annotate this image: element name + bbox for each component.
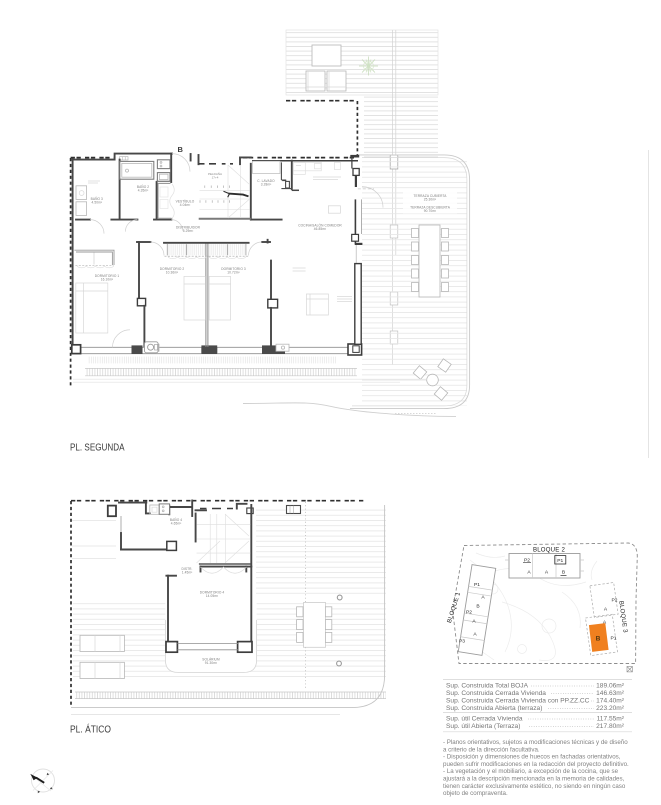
svg-text:- La vegetación y el mobiliari: - La vegetación y el mobiliario, a excep…	[443, 768, 619, 775]
svg-text:90.70m²: 90.70m²	[424, 209, 436, 213]
svg-text:A: A	[604, 607, 608, 613]
svg-text:17+4: 17+4	[212, 175, 219, 179]
svg-text:BLOQUE 1: BLOQUE 1	[446, 591, 462, 624]
svg-text:Sup. Construida Cerrada Vivien: Sup. Construida Cerrada Vivienda	[446, 690, 546, 697]
svg-text:146.63m²: 146.63m²	[596, 690, 625, 697]
svg-text:P1: P1	[474, 582, 480, 588]
svg-text:Sup. Construida Total BOJA: Sup. Construida Total BOJA	[446, 682, 529, 689]
svg-text:Sup. Construida Cerrada Vivien: Sup. Construida Cerrada Vivienda con PP.…	[446, 697, 590, 704]
svg-text:Sup. útil Cerrada Vivienda: Sup. útil Cerrada Vivienda	[446, 715, 523, 722]
svg-text:16.10m²: 16.10m²	[101, 278, 113, 282]
svg-text:4.35m²: 4.35m²	[138, 189, 149, 193]
svg-text:B: B	[476, 604, 479, 610]
svg-text:BLOQUE 3: BLOQUE 3	[617, 600, 628, 633]
svg-text:4.50m²: 4.50m²	[92, 201, 103, 205]
svg-text:ajustará a la descripción menc: ajustará a la descripción mencionada en …	[443, 776, 625, 783]
svg-text:P1: P1	[611, 636, 617, 642]
svg-text:Sup. útil Abierta (Terraza): Sup. útil Abierta (Terraza)	[446, 723, 520, 730]
svg-text:189.06m²: 189.06m²	[596, 682, 625, 689]
svg-text:pueden sufrir modificaciones e: pueden sufrir modificaciones en la redac…	[443, 761, 629, 768]
svg-text:14.05m²: 14.05m²	[206, 594, 218, 598]
svg-text:25.30m²: 25.30m²	[424, 198, 436, 202]
svg-text:10.72m²: 10.72m²	[227, 271, 239, 275]
svg-text:1.45m²: 1.45m²	[182, 570, 193, 574]
svg-text:4.65m²: 4.65m²	[171, 522, 182, 526]
svg-text:B: B	[562, 570, 565, 576]
svg-text:BLOQUE 2: BLOQUE 2	[533, 547, 565, 554]
svg-text:a criterio de la dirección fac: a criterio de la dirección facultativa.	[443, 746, 540, 753]
svg-text:10.36m²: 10.36m²	[166, 271, 178, 275]
svg-text:PL. SEGUNDA: PL. SEGUNDA	[70, 443, 125, 454]
svg-text:174.40m²: 174.40m²	[596, 697, 625, 704]
svg-text:- Disposición y dimensiones de: - Disposición y dimensiones de huecos en…	[443, 754, 621, 761]
svg-text:3.28m²: 3.28m²	[261, 183, 272, 187]
svg-text:4.04m²: 4.04m²	[180, 203, 191, 207]
svg-text:tienen carácter exclusivamente: tienen carácter exclusivamente estético,…	[443, 783, 626, 790]
svg-text:objeto de compraventa.: objeto de compraventa.	[443, 790, 508, 797]
svg-text:117.55m²: 117.55m²	[597, 715, 625, 722]
svg-text:46.85m²: 46.85m²	[314, 227, 326, 231]
svg-text:P2: P2	[466, 610, 472, 616]
svg-text:P2: P2	[612, 598, 618, 604]
svg-text:223.20m²: 223.20m²	[596, 705, 625, 712]
svg-text:PL. ÁTICO: PL. ÁTICO	[70, 723, 111, 736]
svg-text:Sup. Construida Abierta (terra: Sup. Construida Abierta (terraza)	[446, 705, 542, 712]
svg-text:- Planos orientativos, sujetos: - Planos orientativos, sujetos a modific…	[443, 739, 628, 746]
svg-text:217.80m²: 217.80m²	[596, 723, 625, 730]
svg-text:B: B	[596, 636, 601, 643]
svg-text:B: B	[178, 145, 184, 154]
svg-text:91.30m²: 91.30m²	[205, 661, 217, 665]
svg-text:P3: P3	[459, 639, 465, 645]
svg-text:P1: P1	[557, 558, 563, 564]
svg-text:5.29m²: 5.29m²	[183, 229, 194, 233]
